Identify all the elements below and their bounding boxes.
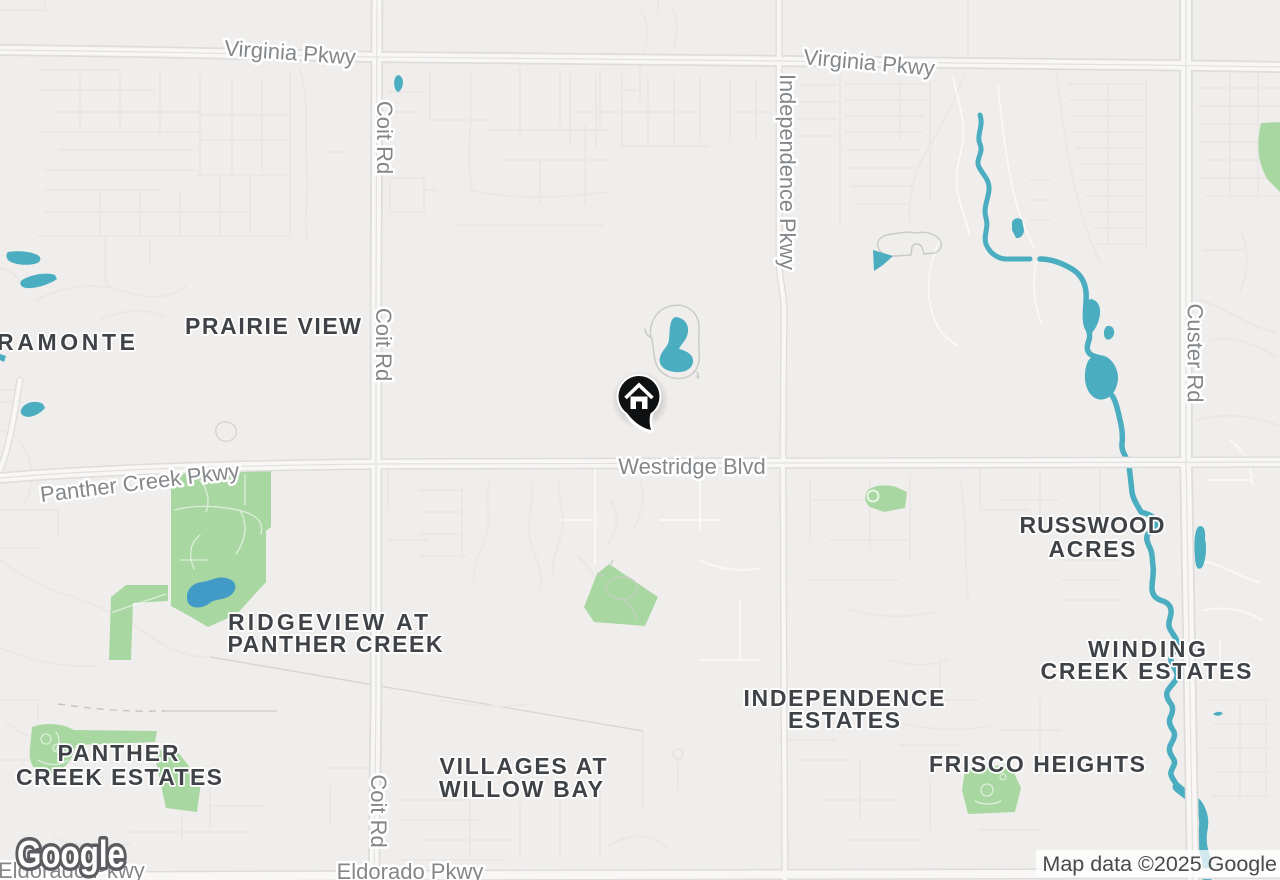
svg-text:CREEK ESTATES: CREEK ESTATES [1041, 658, 1252, 684]
svg-text:PRAIRIE VIEW: PRAIRIE VIEW [185, 313, 361, 339]
svg-text:Custer Rd: Custer Rd [1183, 303, 1208, 402]
svg-text:WILLOW BAY: WILLOW BAY [439, 776, 603, 802]
svg-text:RAMONTE: RAMONTE [0, 329, 135, 355]
svg-text:Eldorado Pkwy: Eldorado Pkwy [337, 859, 484, 880]
svg-text:Map data ©2025 Google: Map data ©2025 Google [1042, 852, 1277, 876]
svg-text:RUSSWOOD: RUSSWOOD [1020, 512, 1165, 538]
svg-text:Google: Google [17, 834, 125, 876]
svg-text:Coit Rd: Coit Rd [366, 774, 391, 847]
svg-text:CREEK ESTATES: CREEK ESTATES [16, 764, 222, 790]
svg-text:Coit Rd: Coit Rd [371, 308, 396, 381]
svg-text:Coit Rd: Coit Rd [372, 101, 397, 174]
svg-text:Independence Pkwy: Independence Pkwy [775, 74, 800, 270]
svg-text:Westridge Blvd: Westridge Blvd [618, 454, 766, 479]
svg-text:ACRES: ACRES [1049, 536, 1136, 562]
